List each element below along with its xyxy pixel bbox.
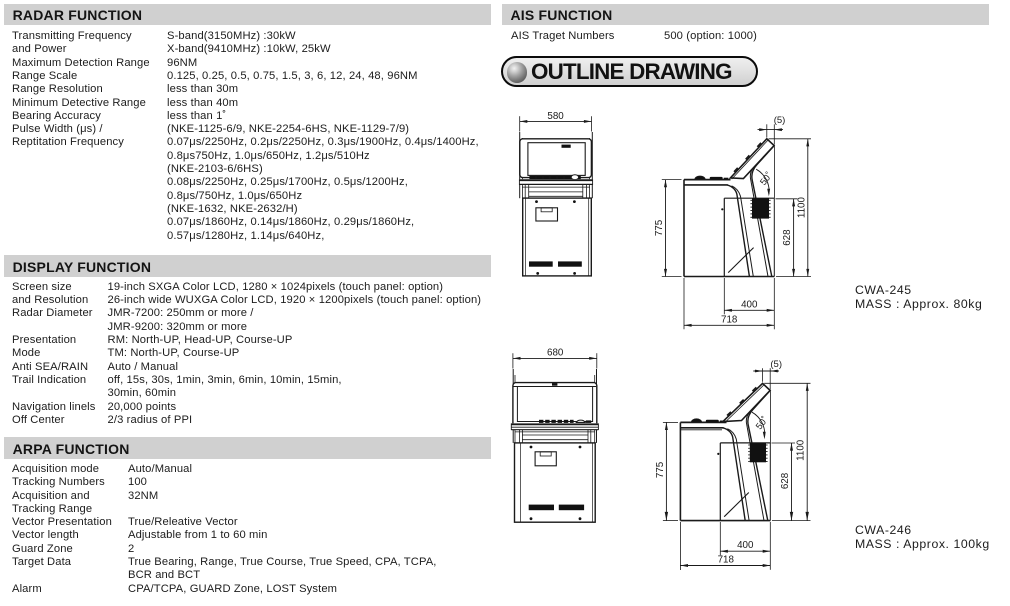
svg-text:(5): (5) [770,359,782,370]
svg-text:400: 400 [741,299,758,310]
svg-text:628: 628 [782,229,793,246]
svg-text:775: 775 [655,461,666,478]
svg-text:1100: 1100 [796,439,807,461]
svg-text:680: 680 [547,348,564,359]
svg-text:(5): (5) [774,115,786,126]
svg-text:50˚: 50˚ [754,415,770,432]
svg-text:1100: 1100 [796,197,807,219]
svg-text:400: 400 [737,540,754,551]
svg-text:718: 718 [721,314,738,325]
svg-text:580: 580 [547,111,564,122]
svg-text:775: 775 [654,219,665,236]
svg-text:718: 718 [718,555,735,566]
svg-text:50˚: 50˚ [758,170,774,187]
svg-text:628: 628 [780,472,791,489]
